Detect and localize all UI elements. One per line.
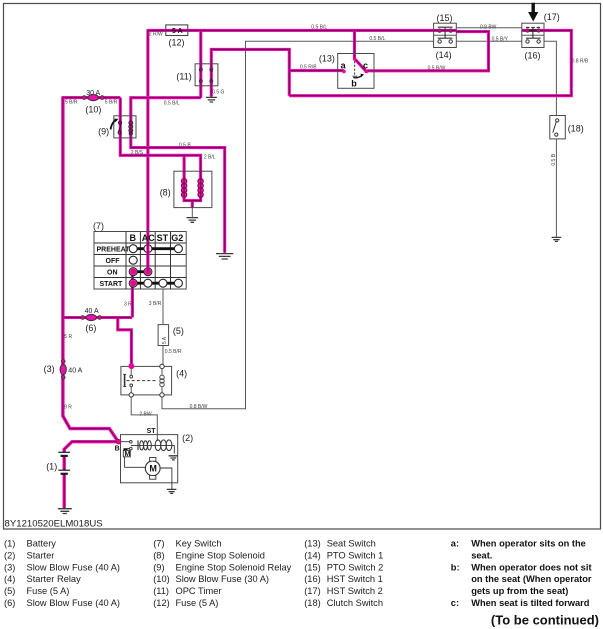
svg-text:5 A: 5 A: [172, 28, 183, 35]
svg-text:Starter: Starter: [27, 551, 55, 561]
svg-text:0.5 B/Y: 0.5 B/Y: [492, 36, 509, 42]
svg-text:(15): (15): [304, 563, 321, 573]
svg-text:5 B/R: 5 B/R: [65, 99, 78, 105]
svg-text:0.8 R/B: 0.8 R/B: [572, 59, 589, 65]
svg-text:(11): (11): [153, 586, 169, 596]
svg-text:0.5 R/B: 0.5 R/B: [300, 65, 317, 71]
svg-text:(11): (11): [176, 72, 191, 82]
svg-text:8Y1210520ELM018US: 8Y1210520ELM018US: [5, 518, 103, 529]
svg-text:0.5 B/R: 0.5 B/R: [165, 349, 182, 355]
svg-text:(12): (12): [153, 598, 170, 608]
svg-text:2 B/S: 2 B/S: [131, 150, 144, 156]
svg-text:Slow Blow Fuse (30 A): Slow Blow Fuse (30 A): [176, 574, 270, 584]
svg-text:When seat is tilted forward: When seat is tilted forward: [471, 598, 590, 608]
svg-text:2 R/W: 2 R/W: [149, 31, 163, 37]
svg-text:Key Switch: Key Switch: [176, 539, 222, 549]
svg-text:Engine Stop Solenoid Relay: Engine Stop Solenoid Relay: [176, 563, 292, 573]
svg-text:(14): (14): [436, 50, 452, 60]
svg-text:(5): (5): [173, 326, 184, 336]
svg-text:Starter Relay: Starter Relay: [27, 574, 82, 584]
svg-text:c: c: [363, 61, 368, 71]
svg-text:(18): (18): [304, 598, 321, 608]
svg-text:Slow Blow Fuse (40 A): Slow Blow Fuse (40 A): [27, 563, 121, 573]
svg-text:(7): (7): [153, 539, 164, 549]
svg-text:(13): (13): [319, 53, 335, 63]
svg-text:(3): (3): [4, 563, 15, 573]
svg-text:(10): (10): [153, 574, 170, 584]
svg-text:HST Switch 2: HST Switch 2: [327, 586, 383, 596]
svg-text:Fuse (5 A): Fuse (5 A): [176, 598, 219, 608]
svg-text:(16): (16): [304, 574, 321, 584]
svg-text:0.5 B/L: 0.5 B/L: [369, 36, 385, 42]
svg-text:0.5 B: 0.5 B: [179, 142, 191, 148]
svg-text:(10): (10): [85, 105, 101, 115]
svg-text:(17): (17): [304, 586, 321, 596]
svg-text:PTO Switch 2: PTO Switch 2: [327, 563, 384, 573]
svg-text:(8): (8): [160, 188, 171, 198]
svg-text:Slow Blow Fuse (40 A): Slow Blow Fuse (40 A): [27, 598, 121, 608]
svg-text:0.5 B/W: 0.5 B/W: [428, 66, 446, 72]
svg-text:(14): (14): [304, 551, 321, 561]
svg-text:(4): (4): [4, 574, 15, 584]
svg-text:(2): (2): [4, 551, 15, 561]
svg-text:5 A: 5 A: [162, 336, 168, 344]
svg-text:(7): (7): [93, 221, 104, 231]
svg-text:(1): (1): [46, 461, 57, 471]
svg-text:ST: ST: [157, 233, 169, 243]
svg-text:When operator sits on the: When operator sits on the: [471, 539, 586, 549]
svg-text:(15): (15): [437, 13, 453, 23]
svg-text:(6): (6): [4, 598, 15, 608]
svg-text:3 R: 3 R: [124, 302, 132, 308]
svg-text:B: B: [115, 446, 120, 453]
svg-text:40 A: 40 A: [85, 308, 99, 315]
svg-text:0.5 B: 0.5 B: [551, 153, 557, 165]
svg-text:(9): (9): [98, 127, 109, 137]
svg-text:M: M: [125, 451, 131, 458]
svg-text:c:: c:: [451, 598, 459, 608]
svg-text:START: START: [100, 281, 124, 288]
svg-text:OPC Timer: OPC Timer: [176, 586, 222, 596]
svg-text:(17): (17): [544, 12, 560, 22]
svg-text:seat.: seat.: [471, 551, 492, 561]
svg-text:When operator does not sit: When operator does not sit: [471, 563, 591, 573]
svg-text:ST: ST: [147, 428, 157, 435]
svg-text:Fuse (5 A): Fuse (5 A): [27, 586, 70, 596]
svg-text:0.8 BW: 0.8 BW: [480, 24, 497, 30]
svg-text:(To be continued): (To be continued): [491, 613, 599, 628]
svg-text:(6): (6): [85, 323, 96, 333]
svg-text:HST Switch 1: HST Switch 1: [327, 574, 383, 584]
svg-text:0.5 B/L: 0.5 B/L: [311, 25, 327, 31]
svg-text:b:: b:: [451, 563, 460, 573]
svg-text:(3): (3): [44, 364, 55, 374]
svg-text:ON: ON: [107, 270, 118, 277]
svg-text:(4): (4): [176, 368, 187, 378]
svg-text:5 R: 5 R: [64, 334, 72, 340]
svg-text:0.5 B/L: 0.5 B/L: [164, 101, 180, 107]
svg-text:AC: AC: [142, 233, 155, 243]
svg-text:5 B/R: 5 B/R: [105, 99, 118, 105]
svg-text:PTO Switch 1: PTO Switch 1: [327, 551, 384, 561]
svg-text:on the seat (When operator: on the seat (When operator: [471, 574, 592, 584]
svg-text:(9): (9): [153, 563, 164, 573]
svg-text:Battery: Battery: [27, 539, 57, 549]
svg-text:30 A: 30 A: [86, 90, 100, 97]
svg-text:3 B/R: 3 B/R: [149, 301, 162, 307]
svg-text:(13): (13): [304, 539, 321, 549]
svg-text:Engine Stop Solenoid: Engine Stop Solenoid: [176, 551, 265, 561]
svg-text:2 BW: 2 BW: [139, 411, 152, 417]
svg-text:(16): (16): [525, 51, 541, 61]
svg-text:(2): (2): [182, 433, 193, 443]
svg-text:b: b: [351, 79, 357, 89]
svg-text:2 B/L: 2 B/L: [204, 154, 216, 160]
svg-text:OFF: OFF: [106, 258, 121, 265]
svg-text:(18): (18): [568, 124, 584, 134]
svg-text:B: B: [130, 233, 137, 243]
svg-text:(12): (12): [169, 37, 185, 47]
svg-text:0.8 B/W: 0.8 B/W: [190, 404, 208, 410]
svg-text:(5): (5): [4, 586, 15, 596]
svg-text:9 R: 9 R: [64, 405, 72, 411]
svg-text:PREHEAT: PREHEAT: [97, 247, 131, 254]
svg-text:Clutch Switch: Clutch Switch: [327, 598, 383, 608]
svg-text:G2: G2: [171, 233, 183, 243]
svg-text:Seat Switch: Seat Switch: [327, 539, 376, 549]
svg-text:0.5 G: 0.5 G: [212, 89, 224, 95]
svg-text:(8): (8): [153, 551, 164, 561]
svg-text:M: M: [149, 463, 157, 473]
svg-text:(1): (1): [4, 539, 15, 549]
svg-text:40 A: 40 A: [68, 368, 82, 375]
svg-text:a:: a:: [451, 539, 459, 549]
svg-text:gets up from the seat): gets up from the seat): [471, 586, 568, 596]
